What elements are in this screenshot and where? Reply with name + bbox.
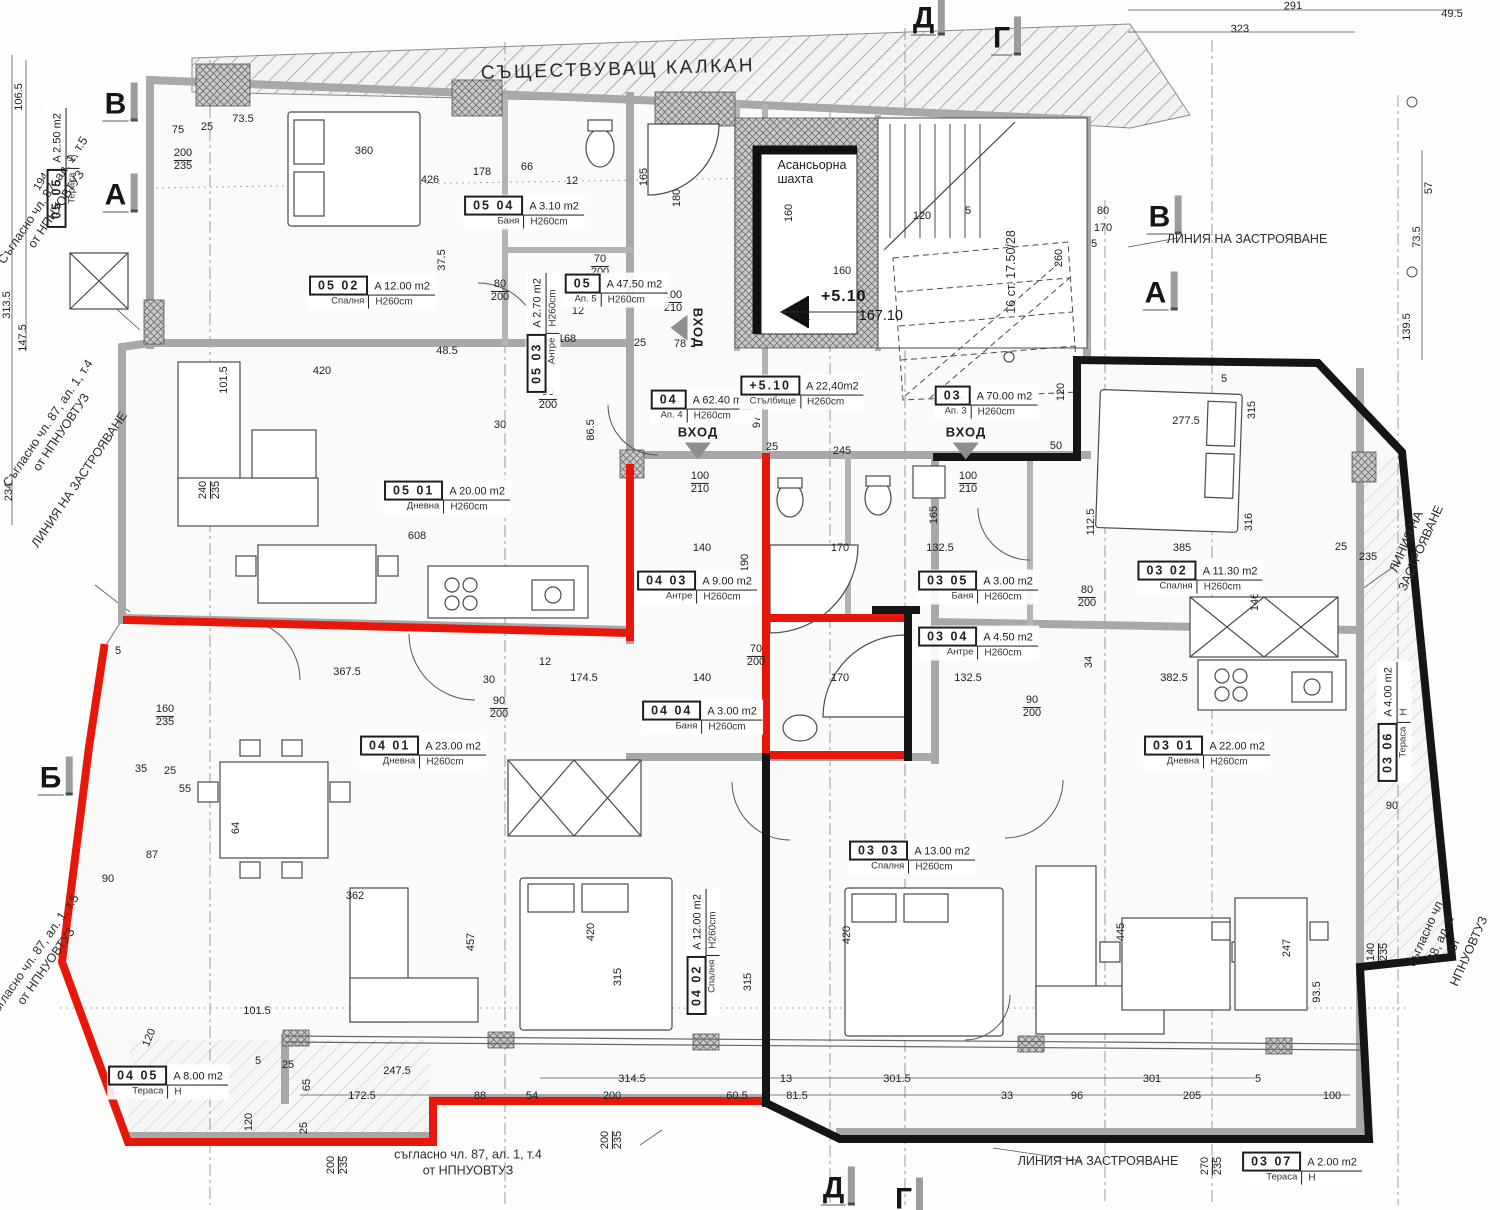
elevator-shaft-label: Асансьорна шахта [776, 156, 849, 188]
axis-nodes [1407, 97, 1417, 277]
level-value: +5.10 [821, 288, 903, 306]
level-marker: +5.10 КК 167.10 [793, 288, 903, 324]
terrace-hatch-left [128, 1040, 430, 1138]
floor-plan-drawing [0, 0, 1500, 1210]
terrace-hatch-right [1360, 456, 1448, 964]
floor-plan-sheet: СЪЩЕСТВУВАЩ КАЛКАН Асансьорна шахта +5.1… [0, 0, 1500, 1210]
level-kk-label: КК [793, 308, 810, 324]
level-elevation: 167.10 [859, 308, 903, 324]
